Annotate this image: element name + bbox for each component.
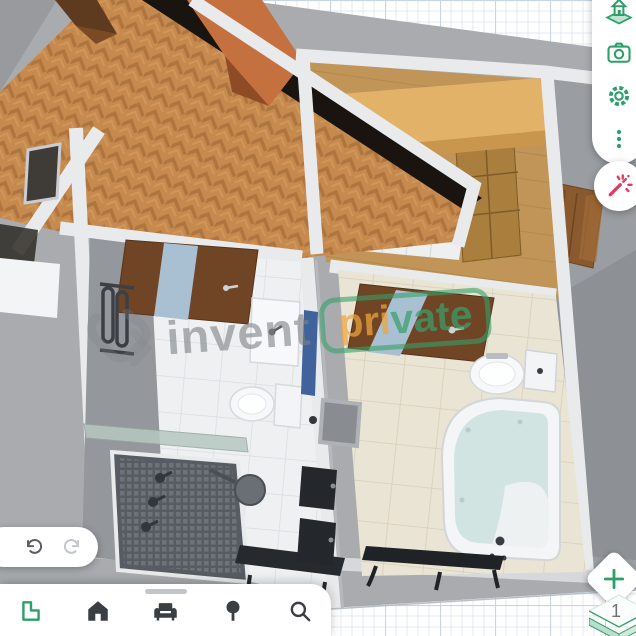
- drag-handle[interactable]: [145, 589, 187, 594]
- camera-icon[interactable]: [602, 36, 636, 70]
- floorplan-tab[interactable]: [16, 596, 46, 626]
- redo-icon: [61, 536, 83, 558]
- furniture-tab[interactable]: [151, 596, 181, 626]
- blue-towel[interactable]: [301, 310, 318, 396]
- floor-level-number: 1: [611, 601, 621, 621]
- history-bar: [0, 527, 98, 567]
- more-dots-icon[interactable]: [602, 122, 636, 156]
- wall-mirror[interactable]: [320, 400, 360, 446]
- plus-icon: [601, 566, 627, 592]
- right-toolbar: [592, 0, 636, 164]
- magic-wand-button[interactable]: [594, 161, 636, 211]
- door-bathroom-right[interactable]: [348, 284, 494, 362]
- undo-button[interactable]: [22, 535, 46, 559]
- white-ledge: [0, 258, 60, 318]
- tree-icon: [220, 598, 246, 624]
- sink[interactable]: [250, 298, 300, 366]
- undo-icon: [23, 536, 45, 558]
- search-tab[interactable]: [285, 596, 315, 626]
- corner-bathtub[interactable]: [442, 398, 560, 561]
- settings-gear-icon[interactable]: [602, 79, 636, 113]
- landscape-tab[interactable]: [218, 596, 248, 626]
- home-icon: [85, 598, 111, 624]
- furniture-sofa-icon: [152, 598, 179, 625]
- redo-button[interactable]: [60, 535, 84, 559]
- shower-mixer[interactable]: [309, 416, 317, 424]
- bottom-toolbar: [0, 584, 331, 636]
- magic-wand-icon: [604, 171, 634, 201]
- wall-window[interactable]: [25, 144, 60, 203]
- wall-cabinet[interactable]: [524, 350, 557, 392]
- toilet-right[interactable]: [470, 353, 524, 394]
- door-bathroom-left[interactable]: [116, 240, 258, 324]
- planner-app: invent private: [0, 0, 636, 636]
- house-3d-icon[interactable]: [602, 0, 636, 27]
- search-icon: [287, 598, 313, 624]
- floorplan-icon: [18, 598, 44, 624]
- home-tab[interactable]: [83, 596, 113, 626]
- dark-mat: [0, 224, 38, 264]
- floor-level-button[interactable]: 1: [589, 592, 636, 636]
